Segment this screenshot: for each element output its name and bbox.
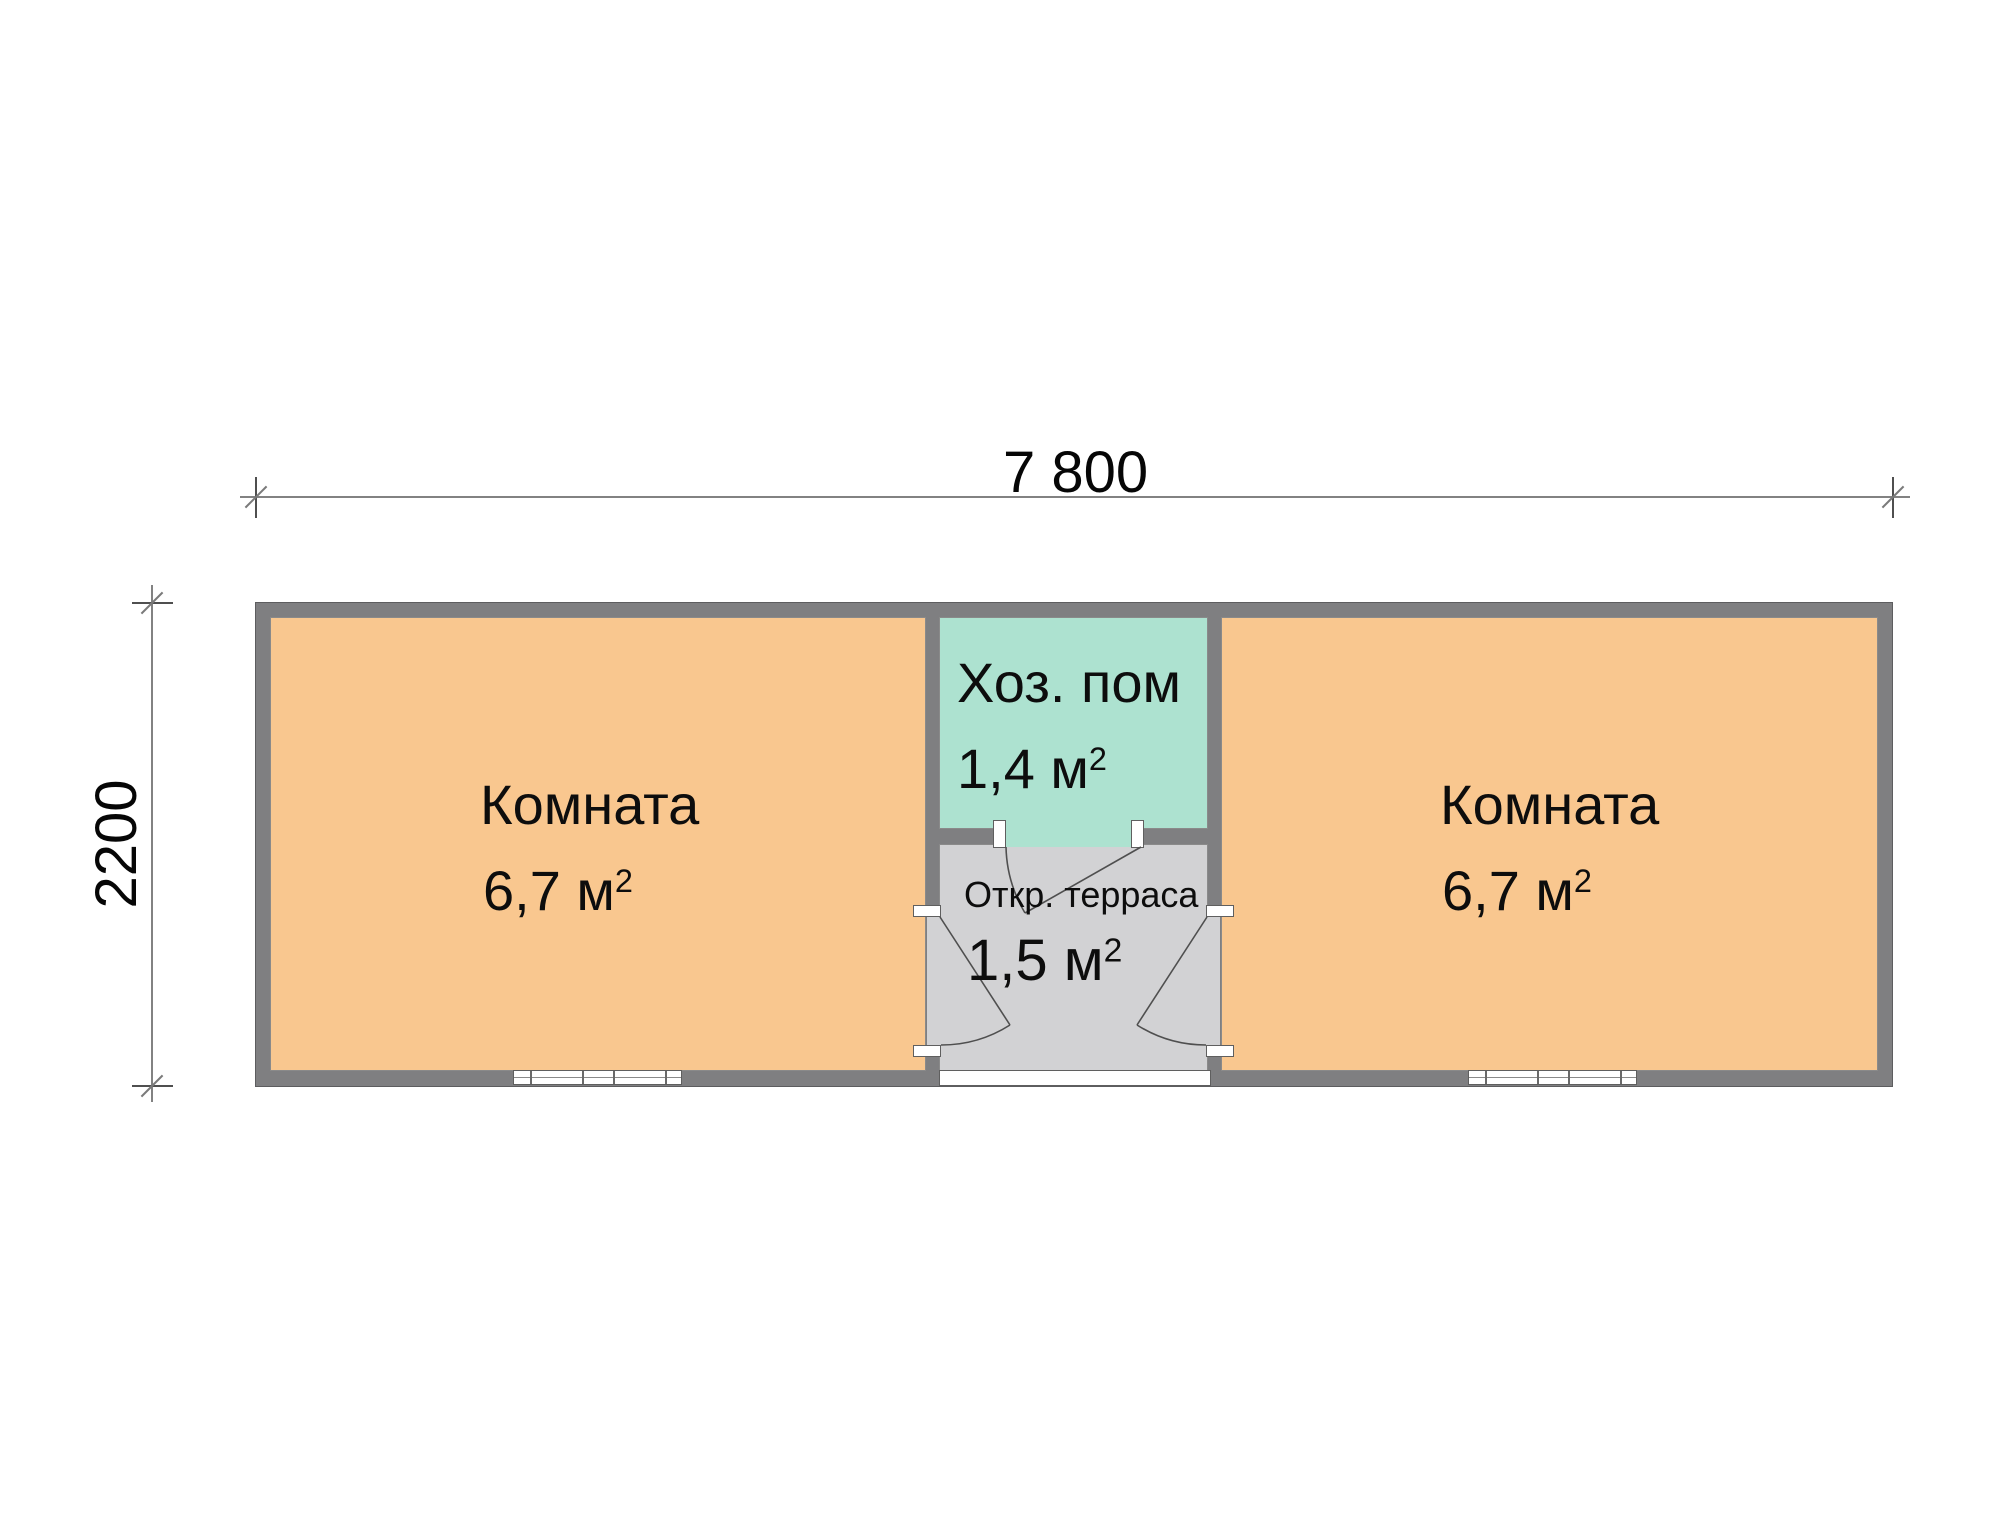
terrace-area: 1,5 м2	[967, 932, 1122, 990]
room-right-area: 6,7 м2	[1442, 863, 1592, 919]
terrace-name: Откр. терраса	[964, 877, 1198, 913]
room-left-area: 6,7 м2	[483, 863, 633, 919]
terrace-left-door-arc	[941, 1025, 1010, 1045]
utility-room-area-sup: 2	[1089, 741, 1107, 777]
terrace-right-door-leaf	[1137, 917, 1207, 1025]
utility-room-name: Хоз. пом	[957, 655, 1181, 711]
floor-plan: 7 800 2200	[0, 0, 2000, 1538]
room-left-name: Комната	[480, 777, 699, 833]
utility-room-area-text: 1,4 м	[957, 737, 1089, 800]
room-right-name: Комната	[1440, 777, 1659, 833]
room-right-area-text: 6,7 м	[1442, 859, 1574, 922]
terrace-area-text: 1,5 м	[967, 928, 1104, 993]
room-right-area-sup: 2	[1574, 863, 1592, 899]
room-left-area-sup: 2	[615, 863, 633, 899]
terrace-area-sup: 2	[1104, 933, 1123, 970]
utility-room-area: 1,4 м2	[957, 741, 1107, 797]
terrace-right-door-arc	[1137, 1025, 1206, 1045]
room-left-area-text: 6,7 м	[483, 859, 615, 922]
